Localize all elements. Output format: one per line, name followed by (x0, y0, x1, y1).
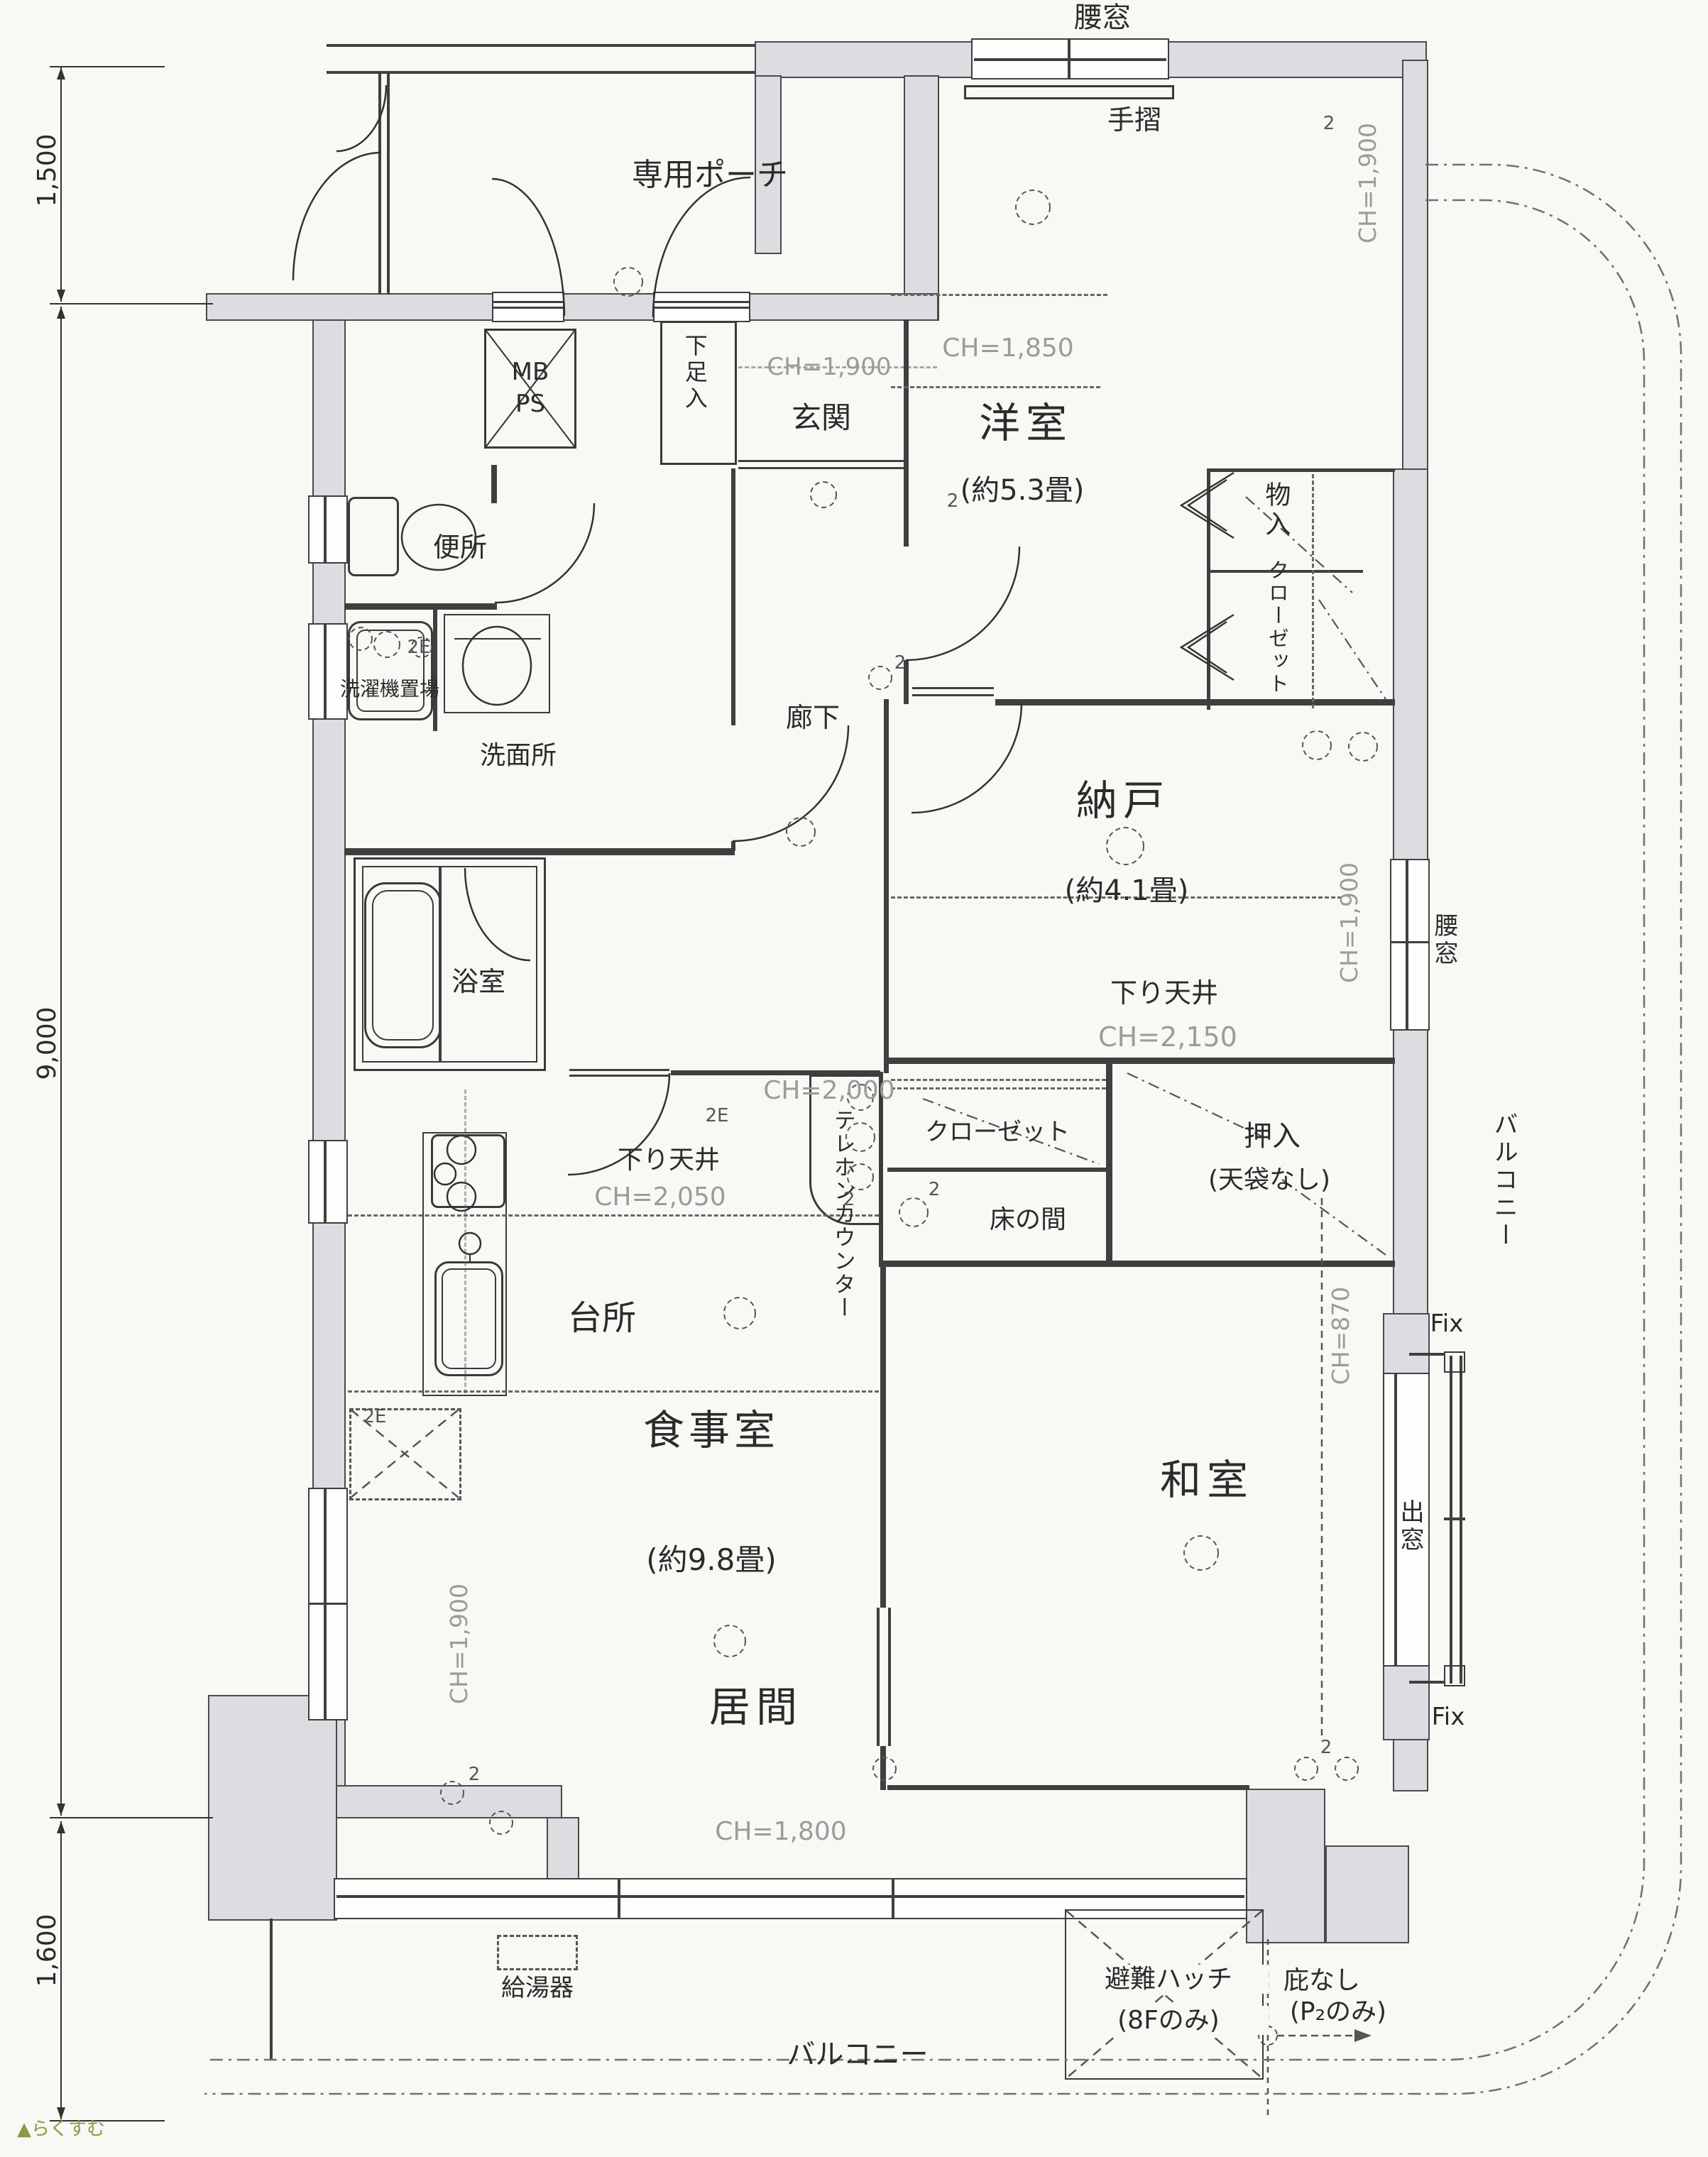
marker-circle (1107, 828, 1144, 865)
logo: ▲らくすむ (17, 2119, 159, 2141)
stove-burner3 (447, 1182, 476, 1211)
label-corridor: 廊下 (756, 703, 870, 734)
door-arc-washroom (733, 725, 848, 841)
dim-label-middle: 9,000 (33, 972, 58, 1114)
label-dining: 食事室 (605, 1407, 818, 1454)
marker-circle (1295, 1757, 1318, 1780)
label-toilet: 便所 (403, 532, 517, 564)
marker-circle (614, 268, 642, 296)
label-fix-top: Fix (1418, 1310, 1475, 1338)
label-ch1900-storeroom: CH=1,900 (1336, 852, 1362, 994)
marker-circle (349, 627, 372, 650)
label-balcony-bottom: バルコニー (751, 2038, 964, 2071)
label-ch870: CH=870 (1327, 1265, 1353, 1407)
marker-2-storeroom-door: 2 (886, 653, 914, 674)
mbps-x (486, 330, 575, 447)
marker-circle (899, 1198, 928, 1226)
marker-circle (714, 1625, 745, 1657)
label-no-eaves: 庇なし (1265, 1966, 1379, 1995)
label-storeroom-size: (約4.1畳) (1020, 874, 1233, 907)
label-ch1900-western-wall: CH=1,900 (1354, 112, 1380, 254)
label-shoe-closet: 下足入 (681, 334, 708, 412)
label-fix-bottom: Fix (1420, 1703, 1477, 1731)
door-arc-porch-small (336, 85, 386, 151)
dim-arrow (57, 1821, 65, 1833)
marker-2-bottom-left: 2 (460, 1764, 488, 1786)
label-living: 居間 (671, 1684, 841, 1731)
label-ch1850: CH=1,850 (916, 334, 1100, 363)
label-kitchen: 台所 (538, 1299, 666, 1338)
label-tokonoma: 床の間 (971, 1205, 1085, 1234)
marker-2e-laundry: 2E (398, 637, 440, 659)
marker-2-western: 2 (938, 491, 967, 512)
dim-arrow (57, 290, 65, 302)
dim-arrow (57, 2107, 65, 2119)
dim-arrow (57, 67, 65, 79)
folding-door-upper (1181, 473, 1234, 538)
label-no-eaves-note: (P₂のみ) (1253, 1997, 1423, 2026)
label-closet-dk: クローゼット (912, 1119, 1083, 1146)
label-storage: 物入 (1261, 481, 1290, 539)
label-telephone-counter: テレホンカウンター (829, 1109, 855, 1319)
label-laundry: 洗濯機置場 (326, 678, 454, 701)
label-escape-hatch-note: (8Fのみ) (1068, 2006, 1269, 2035)
label-closet-west: クローゼット (1265, 559, 1288, 696)
label-ch2000: CH=2,000 (737, 1076, 921, 1105)
label-porch: 専用ポーチ (611, 158, 809, 194)
no-eaves-arrowhead (1354, 2029, 1372, 2042)
label-balcony-right: バルコニー (1489, 1112, 1517, 1250)
door-arc-western (906, 547, 1019, 660)
label-storeroom-drop: 下り天井 (1079, 978, 1249, 1009)
label-bathroom: 浴室 (422, 967, 535, 998)
marker-circle (787, 818, 815, 846)
label-bay-window: 出窓 (1396, 1499, 1423, 1554)
dim-label-bottom: 1,600 (33, 1879, 58, 2021)
label-water-heater: 給湯器 (481, 1975, 594, 2002)
floor-plan: 1,500 9,000 1,600 腰窓 手摺 専用ポーチ 2 CH=1,900… (0, 0, 1708, 2157)
marker-2e-dk: 2E (696, 1106, 738, 1127)
door-arc-porch-large (293, 153, 381, 280)
marker-circle (374, 632, 400, 657)
door-arc-storeroom (912, 703, 1022, 813)
logo-text: らくすむ (31, 2119, 105, 2140)
marker-2e-kitchen-box: 2E (354, 1407, 396, 1428)
marker-circle (1184, 1536, 1218, 1570)
label-storeroom: 納戸 (1038, 777, 1208, 825)
label-oshiire-note: (天袋なし) (1163, 1165, 1376, 1195)
label-waist-window-right: 腰窓 (1430, 913, 1457, 968)
label-dk-drop: 下り天井 (584, 1146, 754, 1175)
label-washroom: 洗面所 (454, 741, 582, 770)
marker-circle (873, 1757, 896, 1780)
label-western-room: 洋室 (941, 400, 1111, 447)
marker-circle (811, 482, 836, 507)
label-ch1800: CH=1,800 (689, 1817, 873, 1846)
marker-circle (1016, 190, 1050, 224)
dim-arrow (57, 307, 65, 319)
label-escape-hatch: 避難ハッチ (1068, 1965, 1269, 1994)
label-ch1900-living: CH=1,900 (446, 1573, 471, 1715)
marker-2-washitsu-bottom: 2 (1312, 1738, 1340, 1759)
stove-burner2 (434, 1163, 456, 1185)
marker-circle (1349, 732, 1377, 761)
storage-diag2 (1319, 600, 1386, 699)
door-arc-mbps (492, 179, 564, 316)
label-ch2050: CH=2,050 (568, 1182, 752, 1212)
sink-faucet (459, 1233, 481, 1254)
folding-door-lower (1181, 615, 1234, 680)
marker-circle (724, 1297, 755, 1329)
label-waist-window-top: 腰窓 (1046, 1, 1159, 34)
marker-circle (1335, 1757, 1358, 1780)
marker-circle (1303, 731, 1331, 759)
dim-arrow (57, 1804, 65, 1816)
marker-circle (490, 1811, 513, 1834)
marker-2-top-right: 2 (1315, 114, 1343, 135)
label-ps: PS (502, 390, 559, 418)
door-arc-entrance (653, 177, 750, 317)
label-dining-size: (約9.8畳) (605, 1543, 818, 1577)
label-ch1900-entrance: CH=1,900 (744, 353, 914, 381)
label-entrance: 玄関 (765, 401, 878, 435)
marker-2-counter: 2 (835, 1190, 863, 1211)
label-mb: MB (502, 358, 559, 386)
label-japanese-room: 和室 (1122, 1456, 1292, 1504)
escape-hatch-x (1066, 1911, 1262, 2078)
dim-ticks (50, 67, 213, 2121)
logo-icon: ▲ (17, 2119, 31, 2140)
door-arc-bath (465, 868, 530, 960)
label-handrail: 手摺 (1078, 105, 1191, 136)
stove-burner1 (447, 1136, 476, 1164)
label-ch2150: CH=2,150 (1075, 1022, 1260, 1053)
label-oshiire: 押入 (1215, 1120, 1329, 1153)
dim-label-top: 1,500 (33, 99, 58, 241)
marker-2-tokonoma: 2 (920, 1180, 948, 1201)
